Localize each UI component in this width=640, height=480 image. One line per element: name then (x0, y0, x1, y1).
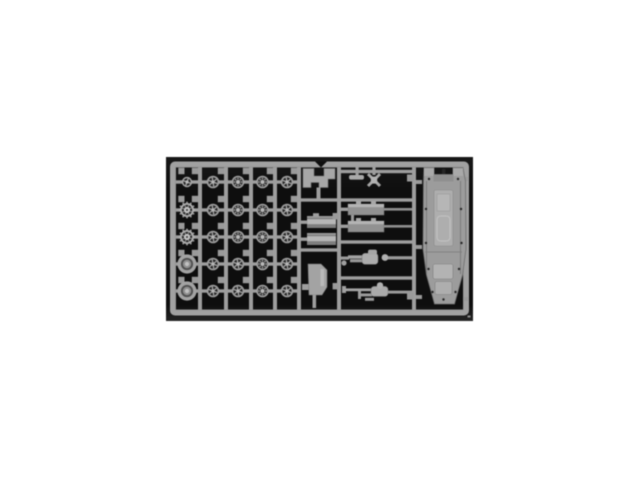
wheel-spoked (207, 204, 220, 217)
wheel-spoked8 (256, 285, 269, 298)
wheel-spoked (207, 285, 220, 298)
page-background (0, 0, 640, 480)
wheel-spoked (207, 258, 220, 271)
wheel-spoked (281, 258, 294, 271)
wheel-tire-large (177, 281, 196, 300)
wheel-spoked8 (256, 204, 269, 217)
wheel-hub-small (182, 177, 192, 187)
wheel-spoked8 (232, 231, 245, 244)
wheel-spoked (281, 231, 294, 244)
wheel-spoked (281, 204, 294, 217)
wheel-spoked8 (256, 231, 269, 244)
photo-speck (468, 316, 471, 318)
wheel-spoked8 (256, 176, 269, 189)
wheel-spoked (232, 285, 245, 298)
wheel-tire-large (177, 254, 196, 273)
wheel-spoked (281, 176, 294, 189)
wheel-spoked8 (232, 204, 245, 217)
product-photo (166, 157, 473, 321)
wheel-spoked (207, 231, 220, 244)
wheel-spoked (232, 258, 245, 271)
wheel-spoked8 (256, 258, 269, 271)
wheel-spoked (281, 285, 294, 298)
sprue-photo (166, 157, 473, 321)
wheel-spoked (207, 176, 220, 189)
wheel-spoked8 (232, 176, 245, 189)
